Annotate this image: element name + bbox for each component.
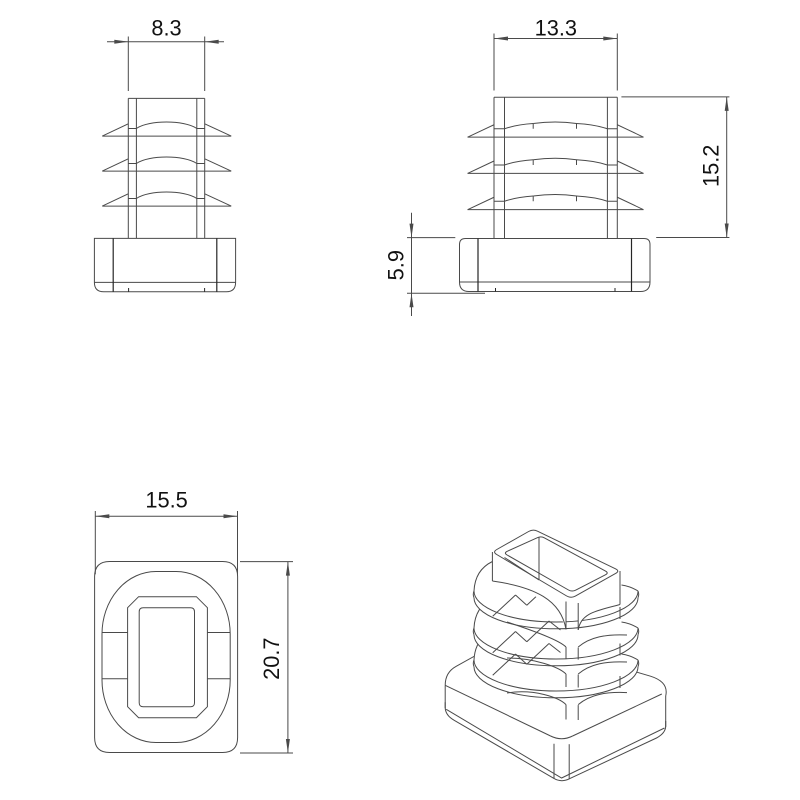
svg-text:15.5: 15.5: [145, 487, 187, 512]
svg-text:8.3: 8.3: [151, 16, 181, 41]
svg-text:13.3: 13.3: [535, 16, 577, 41]
svg-text:20.7: 20.7: [259, 637, 284, 679]
svg-text:15.2: 15.2: [698, 145, 723, 187]
svg-text:5.9: 5.9: [384, 250, 409, 280]
